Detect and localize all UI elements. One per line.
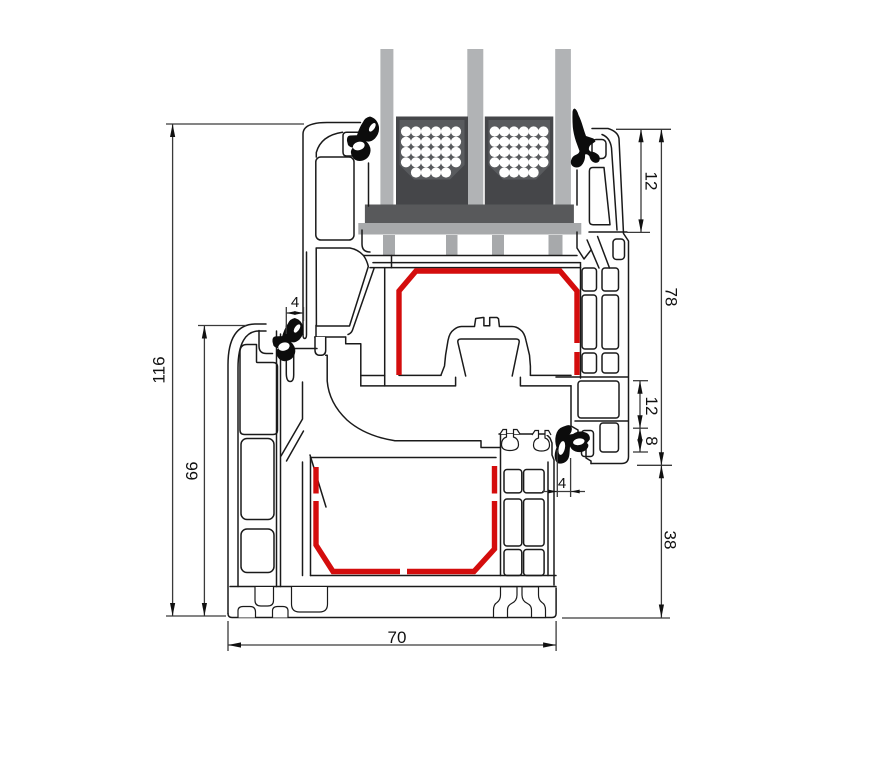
svg-text:66: 66 bbox=[182, 462, 201, 481]
svg-text:78: 78 bbox=[662, 288, 681, 307]
svg-text:70: 70 bbox=[388, 628, 407, 647]
svg-text:4: 4 bbox=[558, 475, 566, 492]
svg-text:8: 8 bbox=[642, 436, 661, 445]
svg-text:4: 4 bbox=[291, 294, 299, 311]
svg-text:12: 12 bbox=[642, 397, 661, 416]
svg-text:38: 38 bbox=[661, 531, 680, 550]
svg-text:116: 116 bbox=[149, 356, 168, 383]
svg-text:12: 12 bbox=[642, 172, 661, 191]
